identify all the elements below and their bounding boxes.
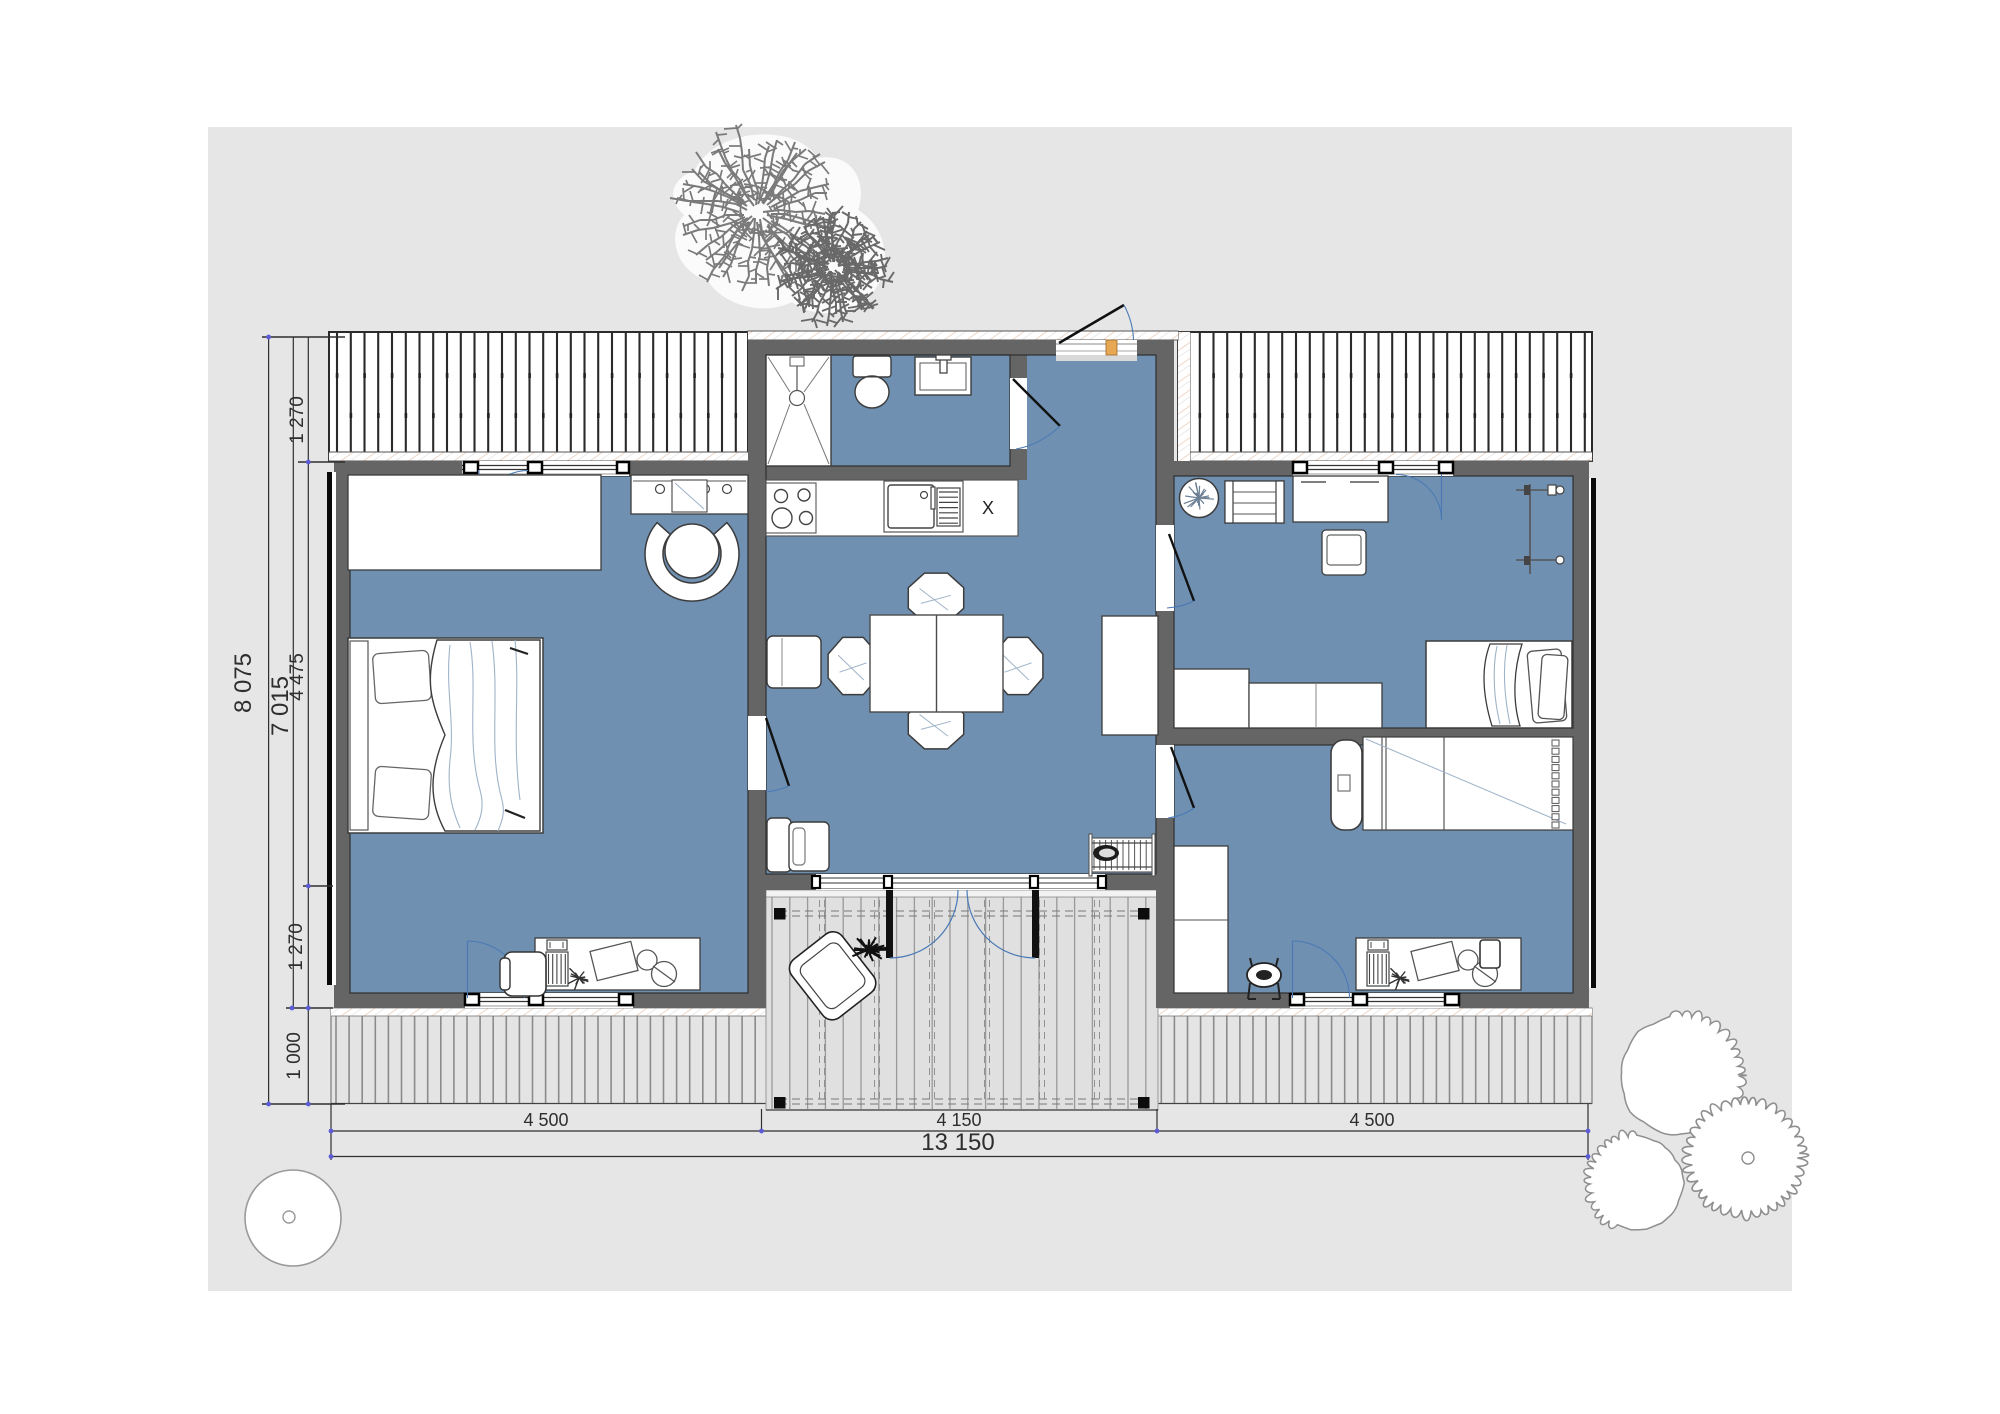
svg-text:4 500: 4 500 xyxy=(523,1110,568,1130)
svg-text:4 500: 4 500 xyxy=(1349,1110,1394,1130)
svg-text:4 150: 4 150 xyxy=(936,1110,981,1130)
svg-text:13 150: 13 150 xyxy=(921,1129,994,1156)
svg-text:1 270: 1 270 xyxy=(287,396,308,444)
svg-text:8 075: 8 075 xyxy=(230,653,257,713)
svg-text:1 000: 1 000 xyxy=(284,1032,305,1080)
svg-text:X: X xyxy=(982,498,994,518)
svg-text:1 270: 1 270 xyxy=(286,923,307,971)
svg-text:4 475: 4 475 xyxy=(287,653,308,701)
